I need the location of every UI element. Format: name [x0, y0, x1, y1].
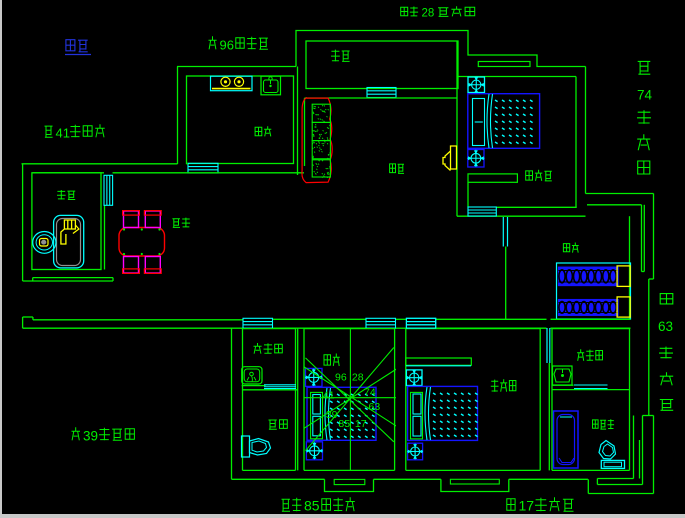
svg-text:39: 39	[326, 409, 338, 421]
svg-text:17: 17	[355, 418, 367, 430]
svg-text:39: 39	[83, 428, 98, 443]
svg-text:74: 74	[364, 386, 376, 398]
svg-text:74: 74	[637, 88, 653, 103]
svg-text:41: 41	[56, 125, 70, 140]
svg-text:96: 96	[220, 37, 234, 52]
svg-text:17: 17	[519, 498, 535, 514]
svg-text:28: 28	[422, 7, 435, 19]
svg-text:85: 85	[304, 498, 320, 514]
svg-text:41: 41	[323, 389, 335, 401]
svg-text:63: 63	[369, 401, 381, 413]
svg-text:63: 63	[658, 319, 673, 334]
svg-text:96: 96	[335, 371, 347, 383]
svg-text:85: 85	[338, 418, 350, 430]
svg-text:28: 28	[352, 371, 364, 383]
